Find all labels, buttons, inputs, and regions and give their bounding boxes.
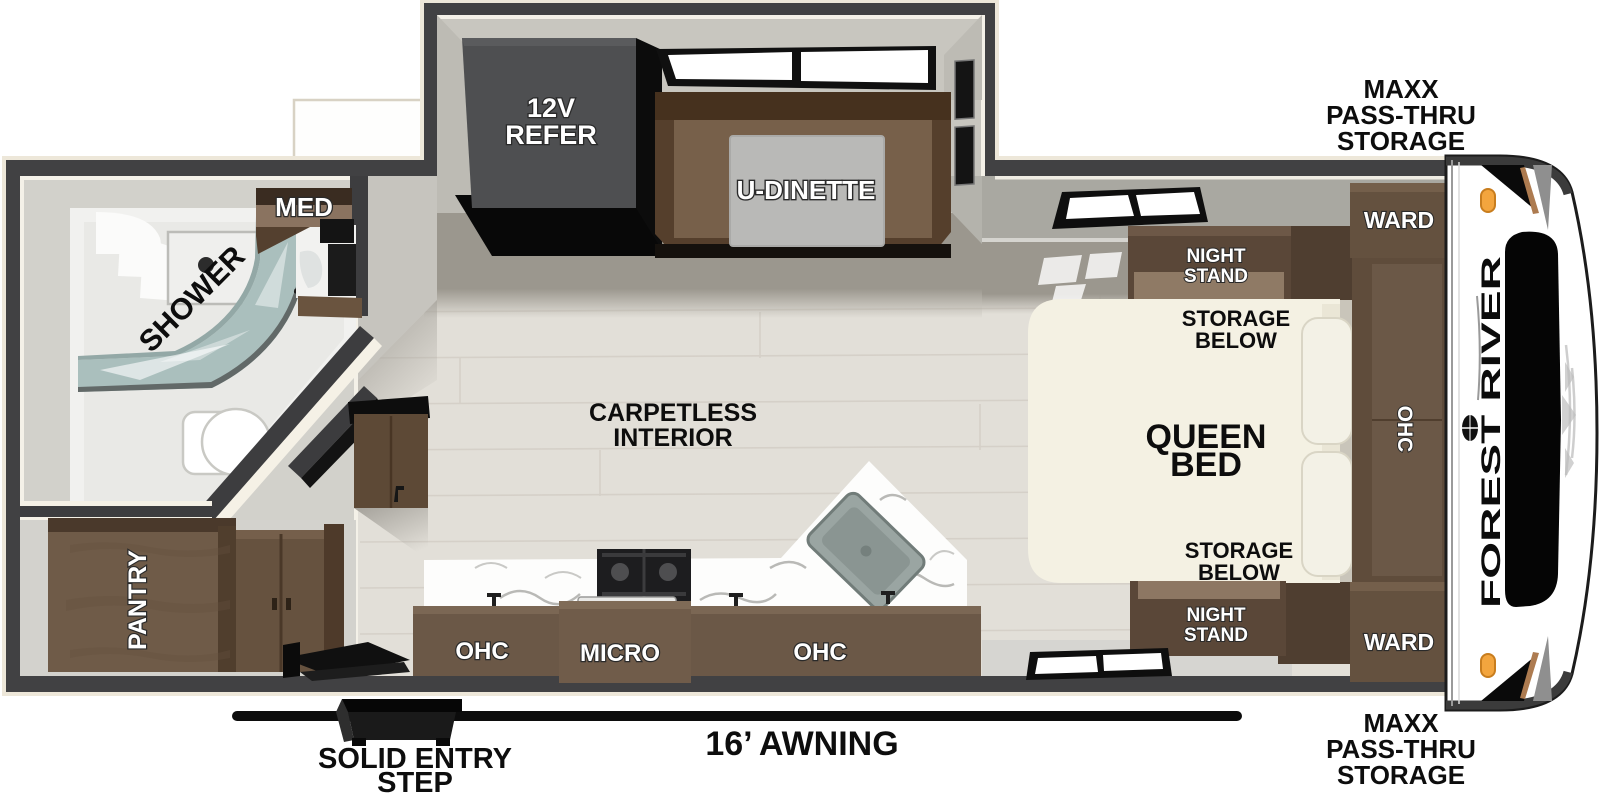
- svg-text:NIGHT: NIGHT: [1186, 246, 1246, 267]
- svg-text:BED: BED: [1170, 446, 1242, 484]
- svg-text:STAND: STAND: [1184, 625, 1248, 646]
- svg-text:MICRO: MICRO: [580, 640, 660, 667]
- svg-text:REFER: REFER: [505, 120, 597, 150]
- svg-text:WARD: WARD: [1364, 207, 1434, 233]
- svg-text:MED: MED: [275, 192, 333, 222]
- svg-text:12V: 12V: [527, 93, 575, 123]
- svg-text:STORAGE: STORAGE: [1337, 760, 1465, 790]
- svg-text:OHC: OHC: [793, 639, 846, 666]
- svg-text:PANTRY: PANTRY: [124, 550, 152, 650]
- svg-text:STAND: STAND: [1184, 266, 1248, 287]
- svg-text:OHC: OHC: [455, 638, 508, 665]
- svg-text:CARPETLESS: CARPETLESS: [589, 399, 757, 427]
- svg-text:STORAGE: STORAGE: [1337, 126, 1465, 156]
- svg-text:BELOW: BELOW: [1195, 328, 1277, 353]
- svg-text:FOREST RIVER: FOREST RIVER: [1476, 256, 1506, 608]
- svg-text:16’ AWNING: 16’ AWNING: [705, 725, 898, 763]
- svg-text:U-DINETTE: U-DINETTE: [737, 175, 876, 205]
- svg-text:OHC: OHC: [1393, 406, 1416, 453]
- svg-text:WARD: WARD: [1364, 629, 1434, 655]
- svg-text:INTERIOR: INTERIOR: [613, 424, 732, 452]
- svg-text:NIGHT: NIGHT: [1186, 605, 1246, 626]
- svg-text:STEP: STEP: [377, 767, 453, 793]
